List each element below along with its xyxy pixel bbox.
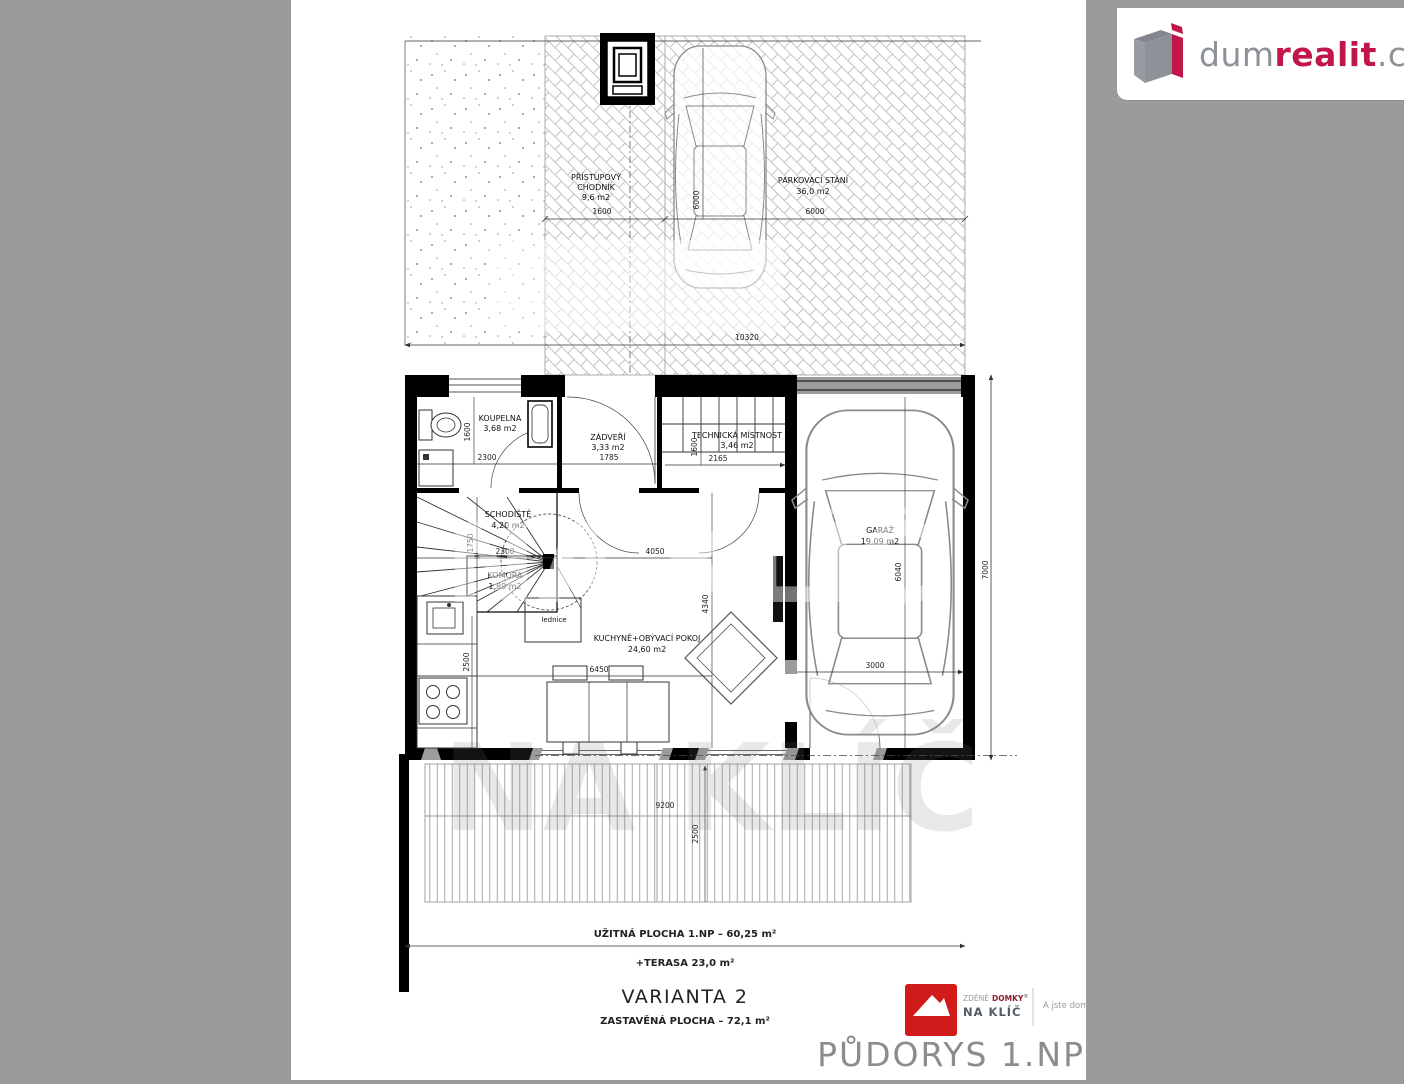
svg-text:+TERASA 23,0 m²: +TERASA 23,0 m² xyxy=(636,958,735,969)
floor-plan-drawing: PŘÍSTUPOVÝ CHODNÍK 9,6 m2 PARKOVACÍ STÁN… xyxy=(291,0,1086,1080)
room-label-zadveri: ZÁDVEŘÍ 3,33 m2 xyxy=(590,431,626,452)
brand-dum: dum xyxy=(1199,35,1275,74)
svg-text:6000: 6000 xyxy=(805,207,824,216)
svg-text:2165: 2165 xyxy=(708,454,727,463)
svg-text:7000: 7000 xyxy=(981,560,990,579)
brand-realit: realit xyxy=(1275,35,1377,74)
svg-text:1600: 1600 xyxy=(592,207,611,216)
svg-text:KOUPELNA: KOUPELNA xyxy=(479,414,522,423)
drawing-title: PŮDORYS 1.NP xyxy=(817,1034,1085,1074)
shower xyxy=(528,401,552,447)
svg-text:ZDĚNÉDOMKY®: ZDĚNÉDOMKY® xyxy=(963,993,1028,1003)
svg-text:ZÁDVEŘÍ: ZÁDVEŘÍ xyxy=(590,431,626,442)
naklic-logo: ZDĚNÉDOMKY® NA KLÍČ A jste doma. xyxy=(905,984,1086,1036)
site-edge-bar xyxy=(399,754,409,992)
svg-text:PŘÍSTUPOVÝ: PŘÍSTUPOVÝ xyxy=(571,171,621,182)
watermark-block xyxy=(486,240,781,332)
svg-text:1600: 1600 xyxy=(690,437,699,456)
svg-text:6000: 6000 xyxy=(692,190,701,209)
brand-cz: .cz xyxy=(1377,35,1404,74)
svg-text:3000: 3000 xyxy=(865,661,884,670)
svg-text:UŽITNÁ PLOCHA 1.NP – 60,25 m²: UŽITNÁ PLOCHA 1.NP – 60,25 m² xyxy=(594,927,777,940)
svg-text:10320: 10320 xyxy=(735,333,759,342)
svg-text:3,33 m2: 3,33 m2 xyxy=(591,443,624,452)
svg-text:2500: 2500 xyxy=(462,652,471,671)
svg-text:36,0 m2: 36,0 m2 xyxy=(796,187,829,196)
svg-text:1600: 1600 xyxy=(463,422,472,441)
svg-text:CHODNÍK: CHODNÍK xyxy=(577,181,615,192)
svg-text:3,68 m2: 3,68 m2 xyxy=(483,424,516,433)
svg-text:6450: 6450 xyxy=(589,665,608,674)
built-up-area: ZASTAVĚNÁ PLOCHA – 72,1 m² xyxy=(600,1014,770,1027)
chair xyxy=(553,666,587,680)
utility-shaft xyxy=(600,33,655,105)
room-label-technicka: TECHNICKÁ MÍSTNOST 3,46 m2 xyxy=(691,429,782,450)
area-summary: UŽITNÁ PLOCHA 1.NP – 60,25 m² +TERASA 23… xyxy=(405,927,965,969)
svg-text:PARKOVACÍ STÁNÍ: PARKOVACÍ STÁNÍ xyxy=(778,174,849,185)
plan-sheet: PŘÍSTUPOVÝ CHODNÍK 9,6 m2 PARKOVACÍ STÁN… xyxy=(291,0,1086,1080)
stove xyxy=(419,678,467,724)
svg-text:3,46 m2: 3,46 m2 xyxy=(720,441,753,450)
svg-text:24,60 m2: 24,60 m2 xyxy=(628,645,666,654)
svg-text:KUCHYNĚ+OBÝVACÍ POKOJ: KUCHYNĚ+OBÝVACÍ POKOJ xyxy=(594,632,701,643)
dumrealit-box-icon xyxy=(1131,21,1189,87)
toilet xyxy=(419,410,461,440)
bathroom-window xyxy=(449,379,521,392)
variant-title: VARIANTA 2 xyxy=(621,986,748,1008)
watermark: NA KLÍČ xyxy=(445,499,937,628)
svg-text:TECHNICKÁ MÍSTNOST: TECHNICKÁ MÍSTNOST xyxy=(691,429,782,440)
garage-door xyxy=(797,377,961,394)
svg-text:1785: 1785 xyxy=(599,453,618,462)
dumrealit-wordmark: dumrealit.cz xyxy=(1199,35,1404,74)
naklic-tagline: A jste doma. xyxy=(1043,1001,1086,1011)
chair xyxy=(609,666,643,680)
room-label-kuchyn: KUCHYNĚ+OBÝVACÍ POKOJ 24,60 m2 xyxy=(594,632,701,654)
dumrealit-logo: dumrealit.cz xyxy=(1117,8,1404,100)
watermark: NA KLÍČ xyxy=(442,719,979,859)
svg-text:2300: 2300 xyxy=(477,453,496,462)
room-label-koupelna: KOUPELNA 3,68 m2 xyxy=(479,414,522,433)
svg-text:NA KLÍČ: NA KLÍČ xyxy=(963,1004,1022,1019)
washing-machine xyxy=(419,450,453,486)
svg-text:9,6 m2: 9,6 m2 xyxy=(582,193,610,202)
